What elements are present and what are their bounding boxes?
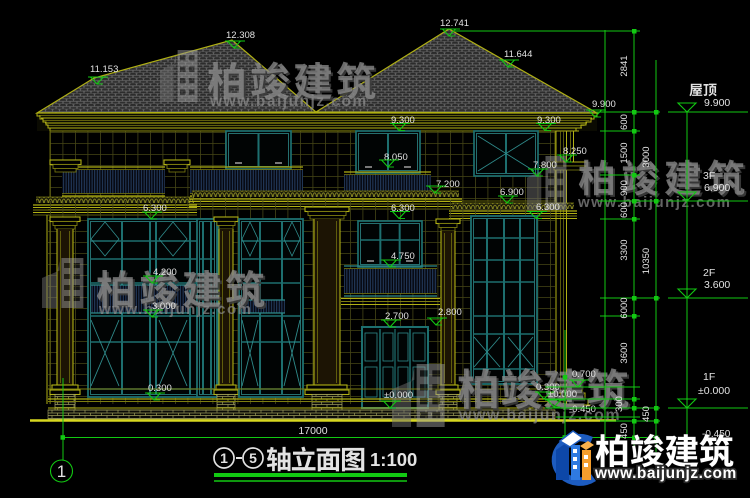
svg-text:11.153: 11.153 [90,64,118,75]
svg-text:12.741: 12.741 [440,18,469,29]
svg-text:www.baijunjz.com: www.baijunjz.com [594,465,737,482]
svg-text:9.300: 9.300 [537,115,561,126]
svg-text:600: 600 [619,202,630,218]
svg-text:1500: 1500 [619,142,630,163]
svg-text:17000: 17000 [298,425,327,437]
svg-text:±0.000: ±0.000 [384,390,413,401]
svg-text:2841: 2841 [619,55,630,76]
svg-text:1: 1 [57,462,66,481]
svg-text:2F: 2F [703,267,715,279]
svg-text:3000: 3000 [641,146,652,167]
svg-text:1:100: 1:100 [370,449,417,470]
svg-text:www.baijunjz.com: www.baijunjz.com [209,93,368,110]
svg-text:5: 5 [249,450,257,466]
svg-text:6.300: 6.300 [391,203,415,214]
svg-text:2.800: 2.800 [438,307,462,318]
svg-text:10350: 10350 [641,248,652,274]
svg-text:11.644: 11.644 [504,49,532,60]
svg-text:www.baijunjz.com: www.baijunjz.com [458,407,621,424]
svg-text:3300: 3300 [619,239,630,260]
svg-text:3600: 3600 [619,342,630,363]
svg-text:300: 300 [614,396,625,412]
svg-text:9.900: 9.900 [704,97,730,109]
svg-text:450: 450 [641,406,652,422]
svg-text:±0.000: ±0.000 [548,389,577,400]
svg-text:0.300: 0.300 [148,383,172,394]
svg-text:3.600: 3.600 [704,279,730,291]
svg-text:600: 600 [619,114,630,130]
svg-text:900: 900 [619,180,630,196]
svg-text:12.308: 12.308 [226,30,255,41]
svg-text:1F: 1F [703,371,715,383]
svg-text:9.900: 9.900 [592,99,616,110]
svg-text:1: 1 [220,450,228,466]
svg-text:6.900: 6.900 [704,182,730,194]
svg-text:3F: 3F [703,170,715,182]
svg-text:9.300: 9.300 [391,115,415,126]
svg-text:6000: 6000 [619,297,630,318]
svg-text:0.700: 0.700 [572,369,596,380]
svg-text:8.050: 8.050 [384,152,408,163]
svg-text:-0.450: -0.450 [569,404,596,415]
svg-text:±0.000: ±0.000 [698,385,730,397]
